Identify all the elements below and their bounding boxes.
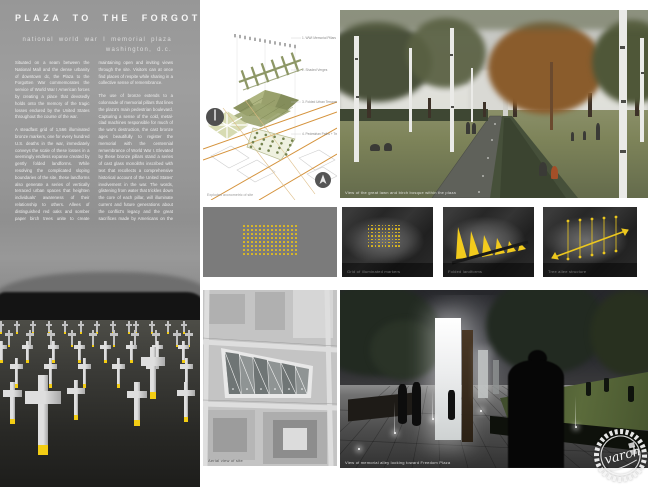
marker-dot: [388, 228, 390, 230]
marker-dot: [279, 225, 281, 227]
marker-dot: [251, 249, 253, 251]
person: [466, 122, 470, 134]
marker-dot: [243, 229, 245, 231]
marker-dot: [259, 253, 261, 255]
allee-diagram: [543, 207, 637, 277]
marker-dot: [275, 241, 277, 243]
marker-dot: [398, 242, 400, 244]
night-tree-canopy: [370, 320, 440, 380]
cemetery-photo: [0, 222, 200, 487]
marker-dot: [275, 249, 277, 251]
marker-dot: [291, 233, 293, 235]
marker-dot: [255, 241, 257, 243]
marker-dot: [247, 229, 249, 231]
marker-dot: [251, 229, 253, 231]
marker-dot: [279, 253, 281, 255]
paragraph: maintaining open and inviting views thro…: [99, 60, 174, 87]
marker-dot: [388, 235, 390, 237]
marker-dot: [392, 245, 394, 247]
axon-label-2: 2. Shaded Verges: [302, 68, 328, 72]
marker-dot: [247, 225, 249, 227]
person-silhouette: [604, 378, 609, 392]
marker-dot: [247, 237, 249, 239]
axon-label-4: 4. Pedestrian Paths + Trees: [302, 132, 337, 136]
marker-dot: [263, 245, 265, 247]
grave-cross: [2, 382, 23, 424]
bronze-fin: [462, 330, 473, 442]
person-silhouette: [448, 390, 455, 420]
marker-dot: [271, 241, 273, 243]
marker-dot: [398, 225, 400, 227]
marker-dot: [388, 225, 390, 227]
marker-dot: [251, 225, 253, 227]
marker-dot: [378, 239, 380, 241]
marker-dot: [267, 225, 269, 227]
marker-dot: [398, 232, 400, 234]
folded-landform-diagram: [443, 207, 534, 277]
night-caption: View of memorial alley looking toward Fr…: [345, 460, 450, 465]
marker-dot: [287, 241, 289, 243]
marker-dot: [382, 228, 384, 230]
marker-dot: [375, 225, 377, 227]
child: [571, 132, 574, 141]
panel-caption: Tree allee structure: [548, 269, 586, 274]
marker-dot: [392, 235, 394, 237]
light-streak: [394, 402, 395, 432]
marker-dot: [255, 249, 257, 251]
marker-dot: [275, 225, 277, 227]
marker-dot: [291, 245, 293, 247]
marker-dot: [398, 228, 400, 230]
marker-dot: [378, 232, 380, 234]
marker-dot: [385, 235, 387, 237]
marker-dot: [382, 239, 384, 241]
marker-dot: [371, 235, 373, 237]
marker-dot: [279, 237, 281, 239]
marker-dot: [255, 237, 257, 239]
concept-panel-grid-overlay: Grid of illuminated markers: [342, 207, 433, 277]
grave-cross: [176, 382, 196, 422]
person-crouching: [539, 162, 547, 176]
marker-dot: [271, 225, 273, 227]
marker-dot: [271, 237, 273, 239]
marker-dot: [267, 241, 269, 243]
path-light: [575, 426, 577, 428]
marker-dot: [392, 239, 394, 241]
marker-dot: [368, 245, 370, 247]
concept-panel-allee-structure: Tree allee structure: [543, 207, 637, 277]
person-silhouette: [628, 386, 634, 402]
marker-dot: [275, 237, 277, 239]
marker-dot: [247, 233, 249, 235]
grave-cross-field: [0, 222, 200, 487]
marker-dot: [371, 232, 373, 234]
marker-dot: [247, 249, 249, 251]
marker-dot: [283, 233, 285, 235]
marker-dot: [398, 239, 400, 241]
marker-dot: [259, 237, 261, 239]
marker-dot: [398, 245, 400, 247]
marker-dot: [375, 232, 377, 234]
person-sitting: [384, 143, 392, 151]
subtitle-line-2: washington, d.c.: [22, 45, 172, 55]
person-silhouette: [586, 382, 591, 396]
marker-dot: [283, 245, 285, 247]
marker-dot: [382, 245, 384, 247]
marker-dot: [385, 232, 387, 234]
poster-title: PLAZA TO THE FORGOTTEN WAR: [15, 13, 193, 23]
marker-dot: [263, 241, 265, 243]
site-footprint: [247, 128, 295, 160]
marker-dot: [283, 225, 285, 227]
marker-dot: [259, 233, 261, 235]
marker-dot: [255, 245, 257, 247]
marker-dot: [291, 237, 293, 239]
marker-dot: [283, 237, 285, 239]
marker-dot: [243, 241, 245, 243]
marker-dot: [291, 249, 293, 251]
birch-trunks: [340, 10, 648, 198]
marker-dot: [368, 235, 370, 237]
marker-dot: [279, 229, 281, 231]
marker-dot: [287, 225, 289, 227]
watermark-stamp: varch: [591, 426, 650, 485]
marker-dot: [371, 225, 373, 227]
glowing-glass-monolith: [493, 360, 499, 394]
light-streak: [575, 396, 576, 426]
marker-dot: [263, 237, 265, 239]
marker-dot: [279, 241, 281, 243]
axon-drawing: 1. WWI Memorial Pillars 2. Shaded Verges…: [203, 8, 337, 200]
concept-panel-marker-grid: [203, 207, 337, 277]
path-light: [432, 418, 434, 420]
marker-dot: [295, 229, 297, 231]
marker-dot: [243, 249, 245, 251]
marker-dot: [259, 245, 261, 247]
grave-cross: [66, 380, 86, 420]
aerial-drawing: [203, 290, 337, 466]
grave-cross: [23, 375, 63, 455]
marker-dot: [395, 239, 397, 241]
marker-dot: [295, 225, 297, 227]
marker-dot: [263, 229, 265, 231]
marker-dot: [247, 253, 249, 255]
paragraph: The use of bronze extends to a colonnade…: [99, 93, 174, 229]
marker-dot: [287, 249, 289, 251]
poster-subtitle: national world war I memorial plaza wash…: [22, 35, 172, 55]
marker-dot: [267, 229, 269, 231]
marker-dot: [275, 233, 277, 235]
marker-dot: [378, 245, 380, 247]
marker-dot: [267, 249, 269, 251]
marker-dot: [392, 225, 394, 227]
marker-dot: [251, 237, 253, 239]
marker-dot: [395, 235, 397, 237]
light-streak: [432, 390, 433, 418]
marker-dot: [388, 242, 390, 244]
gear-stamp-icon: varch: [591, 426, 650, 485]
marker-dot: [271, 233, 273, 235]
marker-dot: [267, 253, 269, 255]
path-light: [358, 448, 360, 450]
marker-dot: [263, 225, 265, 227]
axon-label-3: 3. Folded Urban Terraces: [302, 100, 337, 104]
grave-cross: [14, 321, 21, 334]
marker-dot: [368, 239, 370, 241]
marker-dot: [251, 241, 253, 243]
marker-dot: [378, 235, 380, 237]
marker-dot: [295, 253, 297, 255]
paragraph: Situated on a seam between the National …: [15, 60, 90, 121]
grave-cross: [140, 347, 166, 399]
marker-dot: [255, 225, 257, 227]
marker-dot: [267, 237, 269, 239]
narrative-text: Situated on a seam between the National …: [15, 60, 173, 249]
plaza-rendering: View of the great lawn and birch bosque …: [340, 10, 648, 198]
marker-dot: [259, 229, 261, 231]
grave-cross: [0, 341, 7, 363]
marker-dot: [395, 228, 397, 230]
marker-dot: [279, 233, 281, 235]
marker-dot: [259, 241, 261, 243]
marker-dot: [275, 253, 277, 255]
marker-dot: [375, 245, 377, 247]
marker-dot: [287, 229, 289, 231]
grave-cross: [0, 321, 5, 334]
marker-dot: [382, 232, 384, 234]
marker-dot: [368, 228, 370, 230]
marker-dot: [243, 253, 245, 255]
marker-dot: [251, 233, 253, 235]
overlay-dot-grid: [367, 224, 401, 248]
person: [472, 123, 476, 134]
aerial-caption: Aerial view of site: [208, 458, 243, 463]
person-silhouette: [412, 382, 421, 426]
marker-dot: [385, 228, 387, 230]
watermark-text: varch: [603, 444, 643, 468]
marker-dot-grid: [242, 224, 298, 256]
grave-cross: [78, 321, 85, 334]
marker-dot: [392, 242, 394, 244]
panel-caption: Folded landforms: [448, 269, 482, 274]
marker-dot: [243, 237, 245, 239]
marker-dot: [295, 249, 297, 251]
marker-dot: [295, 245, 297, 247]
marker-dot: [251, 253, 253, 255]
bosque-layer: [239, 53, 303, 90]
marker-dot: [375, 242, 377, 244]
concept-panel-folded-landforms: Folded landforms: [443, 207, 534, 277]
marker-dot: [275, 229, 277, 231]
marker-dot: [378, 225, 380, 227]
person-sitting: [370, 144, 380, 151]
plaza-caption: View of the great lawn and birch bosque …: [345, 190, 456, 195]
marker-dot: [255, 233, 257, 235]
marker-dot: [243, 245, 245, 247]
foreground-person: [508, 360, 564, 468]
marker-dot: [398, 235, 400, 237]
marker-dot: [395, 245, 397, 247]
grave-cross: [111, 358, 126, 388]
marker-dot: [267, 233, 269, 235]
marker-dot: [287, 237, 289, 239]
marker-dot: [388, 232, 390, 234]
marker-dot: [291, 225, 293, 227]
marker-dot: [287, 233, 289, 235]
marker-dot: [385, 225, 387, 227]
marker-dot: [255, 253, 257, 255]
path-light: [480, 410, 482, 412]
marker-dot: [371, 228, 373, 230]
marker-dot: [382, 242, 384, 244]
marker-dot: [263, 253, 265, 255]
marker-dot: [371, 245, 373, 247]
narrative-column-2: maintaining open and inviting views thro…: [99, 60, 174, 249]
marker-dot: [291, 229, 293, 231]
marker-dot: [271, 253, 273, 255]
marker-dot: [283, 229, 285, 231]
marker-dot: [385, 242, 387, 244]
marker-dot: [267, 245, 269, 247]
marker-dot: [392, 228, 394, 230]
marker-dot: [378, 228, 380, 230]
marker-dot: [243, 225, 245, 227]
marker-dot: [271, 249, 273, 251]
marker-dot: [295, 233, 297, 235]
title-panel: PLAZA TO THE FORGOTTEN WAR national worl…: [0, 0, 200, 487]
grave-cross: [165, 321, 172, 334]
marker-dot: [251, 245, 253, 247]
narrative-column-1: Situated on a seam between the National …: [15, 60, 90, 249]
marker-dot: [283, 249, 285, 251]
marker-dot: [382, 225, 384, 227]
marker-dot: [283, 253, 285, 255]
marker-dot: [371, 239, 373, 241]
marker-dot: [382, 235, 384, 237]
marker-dot: [395, 232, 397, 234]
marker-dot: [295, 241, 297, 243]
marker-dot: [291, 241, 293, 243]
axon-label-1: 1. WWI Memorial Pillars: [302, 36, 336, 40]
marker-dot: [247, 241, 249, 243]
marker-dot: [279, 249, 281, 251]
marker-dot: [279, 245, 281, 247]
grave-cross: [110, 330, 119, 347]
marker-dot: [263, 233, 265, 235]
marker-dot: [395, 225, 397, 227]
marker-dot: [388, 239, 390, 241]
exploded-axonometric-panel: 1. WWI Memorial Pillars 2. Shaded Verges…: [203, 8, 337, 200]
marker-dot: [247, 245, 249, 247]
person-silhouette: [398, 384, 407, 424]
marker-dot: [375, 228, 377, 230]
marker-dot: [287, 253, 289, 255]
marker-dot: [378, 242, 380, 244]
marker-dot: [392, 232, 394, 234]
marker-dot: [368, 225, 370, 227]
marker-dot: [385, 245, 387, 247]
site-aerial-plan: Aerial view of site: [203, 290, 337, 466]
marker-dot: [388, 245, 390, 247]
path-light: [394, 432, 396, 434]
marker-dot: [287, 245, 289, 247]
marker-dot: [375, 239, 377, 241]
axon-caption: Exploded axonometric of site: [207, 193, 253, 197]
marker-dot: [291, 253, 293, 255]
marker-dot: [271, 229, 273, 231]
glowing-glass-monolith: [435, 318, 461, 440]
subtitle-line-1: national world war I memorial plaza: [22, 35, 172, 45]
person: [596, 123, 600, 140]
marker-dot: [368, 242, 370, 244]
grave-cross: [126, 341, 137, 363]
marker-dot: [385, 239, 387, 241]
marker-dot: [295, 237, 297, 239]
marker-dot: [255, 229, 257, 231]
marker-dot: [259, 249, 261, 251]
marker-dot: [395, 242, 397, 244]
child: [583, 131, 586, 140]
panel-caption: Grid of illuminated markers: [347, 269, 400, 274]
marker-dot: [259, 225, 261, 227]
child-orange-shirt: [551, 166, 558, 179]
marker-dot: [275, 245, 277, 247]
grave-cross: [100, 341, 111, 363]
grave-cross: [89, 330, 98, 347]
glowing-glass-monolith: [478, 350, 488, 398]
marker-dot: [283, 241, 285, 243]
marker-dot: [243, 233, 245, 235]
marker-dot: [368, 232, 370, 234]
marker-dot: [271, 245, 273, 247]
marker-dot: [263, 249, 265, 251]
marker-dot: [371, 242, 373, 244]
marker-dot: [375, 235, 377, 237]
